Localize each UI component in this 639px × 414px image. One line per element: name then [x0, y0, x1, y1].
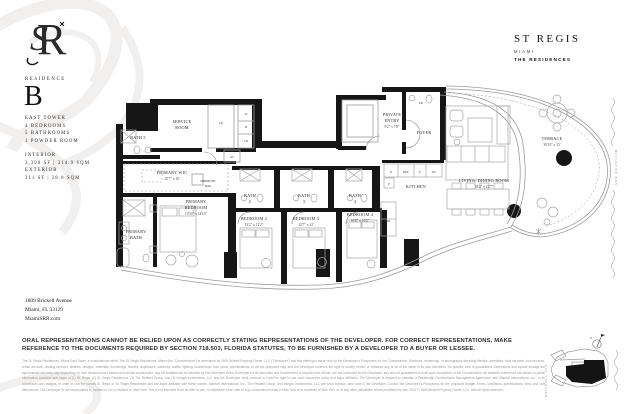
room-label-bedroom3: BEDROOM 3	[293, 216, 319, 221]
svg-text:20'7" x 10': 20'7" x 10'	[164, 177, 180, 181]
svg-text:BATH: BATH	[130, 235, 142, 240]
room-label-living-dining: LIVING/ DINING ROOM	[459, 178, 509, 183]
compass-north-label: N	[590, 336, 593, 340]
label-freezer: F	[419, 170, 421, 174]
svg-text:10'8" x 10'2": 10'8" x 10'2"	[351, 219, 370, 223]
svg-text:ENTRY: ENTRY	[385, 118, 400, 123]
svg-text:ROOM: ROOM	[175, 125, 189, 130]
compass-icon: N	[590, 334, 605, 348]
room-label-bath3: BATH	[298, 193, 310, 198]
room-label-pr: PR	[419, 101, 423, 105]
key-plan: N BRICKELL AVE	[544, 334, 618, 397]
room-label-lr: LR	[219, 121, 223, 125]
svg-text:4: 4	[354, 199, 357, 204]
label-dishwasher: DW	[386, 219, 391, 223]
room-label-private-entry: PRIVATE	[383, 112, 402, 117]
room-label-primary-bedroom: PRIMARY	[186, 199, 207, 204]
room-label-bedroom4: BEDROOM 4	[347, 212, 374, 217]
svg-text:13'2" x 12'2": 13'2" x 12'2"	[245, 223, 264, 227]
brochure-page: S R RESIDENCE B EAST TOWER 4 BEDROOMS 5 …	[0, 0, 639, 414]
room-label-service: SERVICE	[173, 119, 192, 124]
bay-shoreline: BISCAYNE BAY	[612, 98, 619, 278]
svg-text:33'4" x 21'7": 33'4" x 21'7"	[475, 185, 494, 189]
label-wc: WC	[432, 170, 437, 174]
room-label-kitchen: KITCHEN	[406, 184, 426, 189]
label-pantry: P	[388, 182, 390, 186]
room-label-bath4: BATH	[349, 193, 361, 198]
svg-text:12'7" x 12': 12'7" x 12'	[298, 223, 314, 227]
street-label: BRICKELL AVE	[544, 363, 548, 397]
room-label-foyer: FOYER	[417, 130, 432, 135]
room-label-bedroom2: BEDROOM 2	[241, 216, 267, 221]
room-label-bath5: BATH 5	[130, 135, 146, 140]
floor-plan: BATH 5 SERVICE ROOM LR W D LN AC PRIVATE…	[0, 0, 639, 414]
room-label-primary-bath: PRIMARY	[126, 229, 147, 234]
label-midnight-bar: MIDNIGHT	[200, 179, 215, 183]
label-linen: LN	[244, 139, 249, 143]
svg-text:19'10" x 14'10": 19'10" x 14'10"	[185, 212, 208, 216]
label-ac: AC	[230, 155, 234, 159]
svg-text:30'10" x 12': 30'10" x 12'	[543, 143, 560, 147]
bay-label: BISCAYNE BAY	[614, 150, 618, 186]
label-oven: O	[390, 170, 393, 174]
room-dims-private-entry: 9'2" x 7'8"	[384, 125, 400, 129]
svg-text:BAR: BAR	[205, 184, 211, 188]
svg-text:BEDROOM: BEDROOM	[185, 205, 208, 210]
floor-plan-thin-lines	[121, 86, 610, 289]
room-label-primary-wic: PRIMARY WIC	[157, 170, 188, 175]
svg-text:3: 3	[303, 199, 305, 204]
label-dryer: D	[245, 125, 248, 129]
label-refrigerator: REF	[403, 170, 409, 174]
label-washer: W	[245, 112, 248, 116]
room-label-bath2: BATH	[244, 193, 256, 198]
room-label-terrace: TERRACE	[542, 136, 563, 141]
svg-text:2: 2	[249, 199, 251, 204]
